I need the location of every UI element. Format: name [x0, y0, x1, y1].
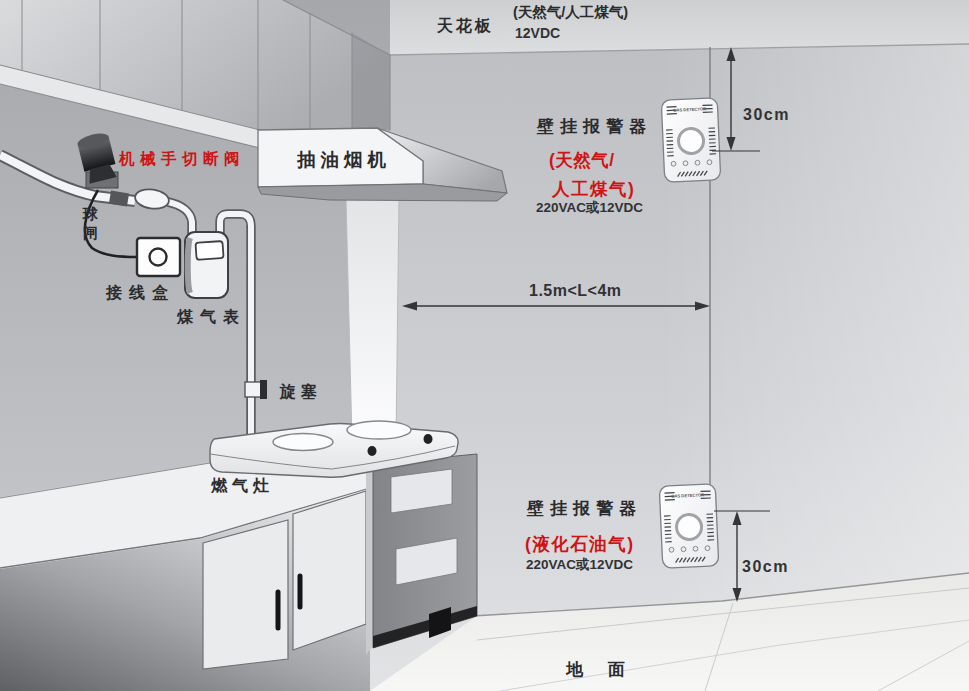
gas-meter-device: [185, 232, 228, 298]
sensor-window: [676, 514, 702, 540]
burner-left: [273, 434, 333, 451]
diagram-canvas: GAS DETECTOR GAS DETECTOR: [0, 0, 969, 691]
gas-stove-label: 燃气灶: [210, 477, 274, 494]
range-hood-label: 抽油烟机: [296, 149, 391, 170]
stove-knob-left: [368, 446, 377, 456]
top-clearance-value: 30cm: [743, 106, 790, 123]
alarm-top-power: 220VAC或12VDC: [536, 200, 643, 215]
top-note-voltage: 12VDC: [515, 25, 560, 41]
shutoff-valve-label: 机械手切断阀: [118, 150, 245, 168]
kitchen-gas-alarm-installation-diagram: GAS DETECTOR GAS DETECTOR: [0, 0, 969, 691]
burner-right: [347, 421, 411, 439]
top-note-gas-types: (天然气/人工煤气): [513, 4, 628, 20]
alarm-bottom-title: 壁挂报警器: [526, 499, 642, 518]
hood-chimney: [346, 199, 399, 441]
plug-valve-label: 旋塞: [279, 382, 322, 400]
alarm-top-title: 壁挂报警器: [536, 117, 652, 136]
alarm-top-gas-type-line1: (天然气/: [549, 150, 615, 170]
plug-valve-device: [245, 380, 267, 399]
counter: [0, 463, 370, 691]
ball-valve-label-char2: 闸: [83, 224, 98, 241]
alarm-bottom-power: 220VAC或12VDC: [526, 557, 633, 572]
horizontal-distance-value: 1.5m<L<4m: [529, 282, 622, 299]
cabinet-door-left: [203, 520, 288, 669]
junction-box-label: 接线盒: [105, 284, 175, 301]
stove-knob-right: [424, 434, 433, 444]
ball-valve-label-char1: 球: [82, 205, 98, 222]
alarm-bottom-gas-type: (液化石油气): [525, 534, 635, 554]
gas-meter-label: 煤气表: [176, 308, 246, 325]
sensor-window: [678, 128, 704, 154]
ground-label: 地 面: [565, 660, 635, 679]
gas-detector-top: GAS DETECTOR: [661, 98, 721, 182]
alarm-top-gas-type-line2: 人工煤气): [551, 179, 635, 199]
bottom-clearance-value: 30cm: [742, 558, 789, 575]
pipe-collar: [110, 197, 128, 200]
ceiling-label: 天花板: [436, 17, 494, 34]
cabinet-door-right: [293, 491, 366, 650]
junction-box-device: [137, 238, 180, 276]
gas-detector-bottom: GAS DETECTOR: [659, 484, 719, 568]
